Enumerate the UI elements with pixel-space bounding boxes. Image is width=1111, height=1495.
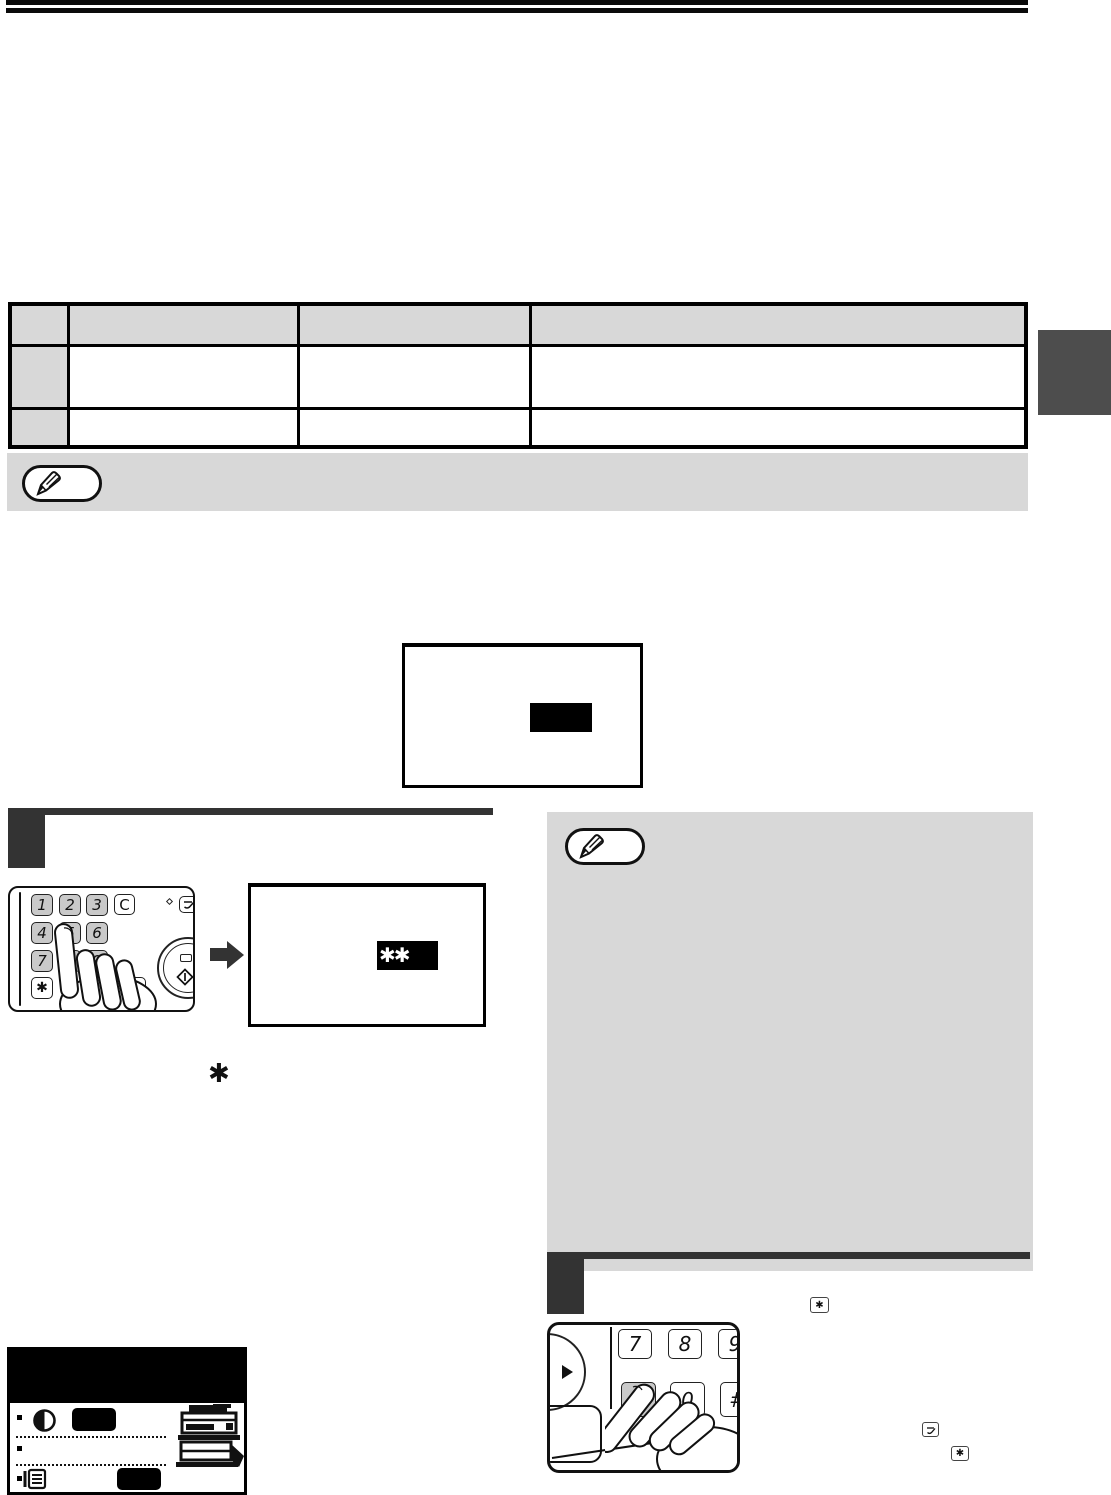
- step1-rule: [8, 808, 493, 815]
- key-2-label: 2: [65, 896, 75, 914]
- contrast-icon: [32, 1408, 57, 1433]
- settings-table: [8, 302, 1028, 449]
- asterisk-glyph: ✱: [208, 1059, 230, 1089]
- display-highlight-cell: [530, 703, 592, 732]
- table-column-line: [297, 306, 300, 445]
- indicator-diamond-icon: [166, 898, 173, 905]
- star-key-icon: ✱: [810, 1297, 829, 1313]
- key2-8-label: 8: [679, 1332, 692, 1356]
- list-icon: [22, 1468, 48, 1491]
- key-3-label: 3: [92, 896, 102, 914]
- display-illustration-1: [402, 643, 643, 788]
- hand-pressing-star-illustration: [605, 1371, 740, 1473]
- right-arrow-icon: [210, 948, 227, 961]
- right-arrow-head: [227, 941, 244, 969]
- top-rule-1: [6, 0, 1028, 5]
- list-bullet: [17, 1415, 22, 1420]
- hand-pressing-5-illustration: [36, 914, 176, 1012]
- table-rule: [12, 407, 1024, 410]
- key-3: 3: [86, 894, 108, 916]
- table-column-line: [529, 306, 532, 445]
- lcd-panel-illustration: [7, 1347, 247, 1495]
- key-clear-label: C: [119, 896, 129, 914]
- step2-rule: [547, 1252, 1030, 1259]
- panel-edge-line: [19, 892, 21, 1006]
- audit-key-icon-inline: [922, 1422, 939, 1437]
- key-1-label: 1: [37, 896, 47, 914]
- key2-9: 9: [718, 1329, 740, 1359]
- triangle-indicator-icon: [562, 1365, 573, 1379]
- note-band: [7, 453, 1028, 511]
- key-1: 1: [31, 894, 53, 916]
- table-header-row: [12, 306, 1024, 344]
- table-rule: [12, 344, 1024, 347]
- key2-8: 8: [668, 1329, 702, 1359]
- note-box: [547, 812, 1033, 1271]
- star-key-icon-inline-label: ✱: [956, 1448, 964, 1459]
- table-column-line: [67, 306, 70, 445]
- start-diamond-icon: [176, 968, 194, 986]
- step2-number-box: [547, 1252, 584, 1314]
- table-first-column: [12, 344, 67, 445]
- chapter-tab: [1038, 330, 1111, 415]
- step1-number-box: [8, 808, 45, 868]
- keypad-illustration-1: 1 2 3 C 4 5 6 7 8 9 ✱ # CA: [8, 886, 195, 1012]
- keypad-illustration-2: 7 8 9 ✱ 0 #: [547, 1322, 740, 1473]
- key-2: 2: [59, 894, 81, 916]
- display-illustration-2: ✱✱: [248, 883, 486, 1027]
- entered-value: ✱✱: [379, 943, 409, 967]
- lcd-title-band: [10, 1350, 244, 1403]
- key-clear: C: [114, 894, 135, 915]
- lcd-highlight-2: [117, 1468, 161, 1490]
- audit-key-icon: [179, 896, 195, 913]
- star-key-icon-label: ✱: [815, 1300, 823, 1311]
- lcd-divider: [16, 1464, 166, 1466]
- lcd-highlight-1: [72, 1408, 116, 1431]
- start-lamp-icon: [180, 954, 192, 962]
- key2-7-label: 7: [629, 1332, 642, 1356]
- display-entered-value-cell: ✱✱: [377, 941, 438, 970]
- asterisk-symbol: ✱: [208, 1061, 230, 1087]
- key2-7: 7: [618, 1329, 652, 1359]
- list-bullet: [17, 1446, 22, 1451]
- manual-page: 1 2 3 C 4 5 6 7 8 9 ✱ # CA: [0, 0, 1111, 1495]
- note-badge-2: [565, 828, 645, 865]
- star-key-icon-inline: ✱: [951, 1446, 969, 1461]
- key2-9-label: 9: [729, 1332, 740, 1356]
- note-badge: [22, 465, 102, 502]
- top-rule-2: [6, 8, 1028, 13]
- copier-icon: [168, 1404, 247, 1472]
- pencil-icon: [33, 469, 63, 497]
- pencil-icon: [576, 832, 606, 860]
- lcd-divider: [16, 1436, 166, 1438]
